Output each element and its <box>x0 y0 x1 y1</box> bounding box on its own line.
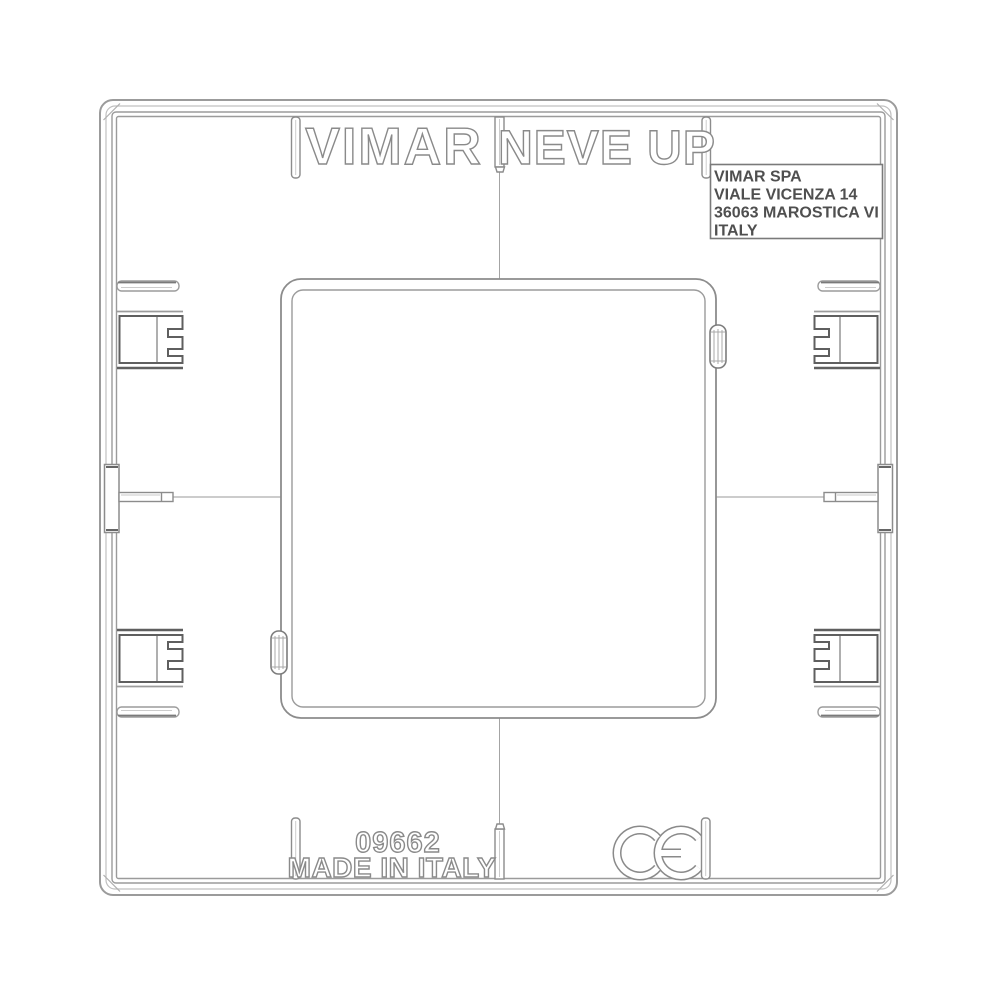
retaining-latch-bottom-left <box>271 631 287 674</box>
plate-rear-view-drawing: VIMAR NEVE UP 09662 MADE IN ITALY VIMAR … <box>0 0 1000 1000</box>
central-opening-outer <box>281 279 716 718</box>
address-label-line-3: 36063 MAROSTICA VI <box>714 205 879 222</box>
address-label-box: VIMAR SPA VIALE VICENZA 14 36063 MAROSTI… <box>711 165 883 240</box>
address-label-line-1: VIMAR SPA <box>714 169 802 186</box>
origin-text: MADE IN ITALY <box>288 852 497 883</box>
address-label-line-4: ITALY <box>714 223 758 240</box>
central-opening <box>271 279 726 718</box>
retaining-latch-top-right <box>710 325 726 368</box>
brand-text: VIMAR <box>305 118 483 176</box>
address-label-line-2: VIALE VICENZA 14 <box>714 187 858 204</box>
rib-bottom-center-cap <box>496 824 505 829</box>
technical-drawing-canvas: VIMAR NEVE UP 09662 MADE IN ITALY VIMAR … <box>0 0 1000 1000</box>
series-text: NEVE UP <box>498 122 716 175</box>
